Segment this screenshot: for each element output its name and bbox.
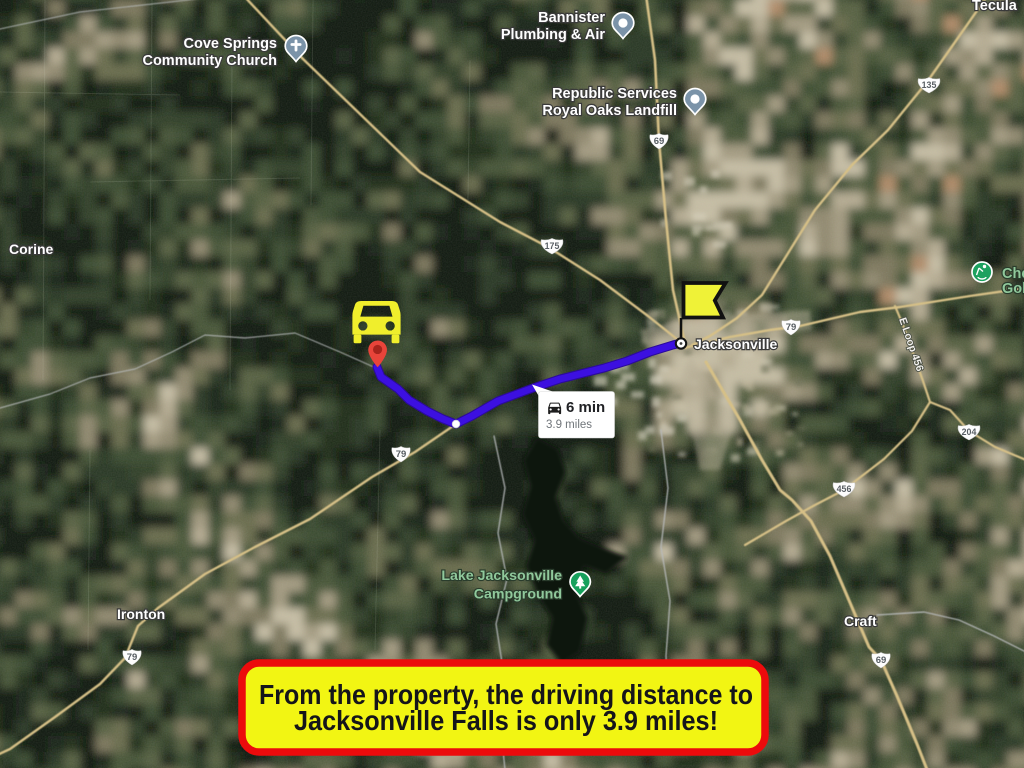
svg-text:Tecula: Tecula: [972, 0, 1018, 14]
svg-text:Craft: Craft: [844, 613, 877, 629]
svg-text:6 min: 6 min: [566, 399, 605, 416]
svg-text:69: 69: [876, 655, 887, 666]
svg-text:Royal Oaks Landfill: Royal Oaks Landfill: [542, 103, 677, 119]
svg-text:Plumbing & Air: Plumbing & Air: [501, 27, 606, 43]
svg-text:79: 79: [396, 449, 407, 460]
svg-text:Lake Jacksonville: Lake Jacksonville: [441, 568, 562, 584]
svg-text:3.9 miles: 3.9 miles: [546, 419, 592, 431]
svg-text:Che: Che: [1002, 266, 1024, 282]
svg-text:204: 204: [962, 427, 977, 437]
svg-text:Republic Services: Republic Services: [552, 86, 677, 102]
svg-text:456: 456: [837, 484, 852, 494]
svg-text:175: 175: [545, 241, 560, 251]
svg-text:Ironton: Ironton: [117, 606, 165, 622]
svg-text:Jacksonville Falls is only 3.9: Jacksonville Falls is only 3.9 miles!: [294, 705, 718, 736]
svg-text:Community Church: Community Church: [142, 53, 277, 69]
svg-text:79: 79: [786, 322, 797, 333]
svg-text:Cove Springs: Cove Springs: [184, 36, 277, 52]
svg-text:Jacksonville: Jacksonville: [694, 336, 777, 352]
svg-text:Campground: Campground: [474, 587, 562, 603]
svg-text:Bannister: Bannister: [538, 10, 605, 26]
svg-text:69: 69: [654, 136, 665, 147]
svg-text:Corine: Corine: [9, 241, 54, 257]
svg-text:135: 135: [922, 80, 937, 90]
svg-text:Gol: Gol: [1002, 281, 1024, 297]
svg-text:79: 79: [127, 652, 138, 663]
